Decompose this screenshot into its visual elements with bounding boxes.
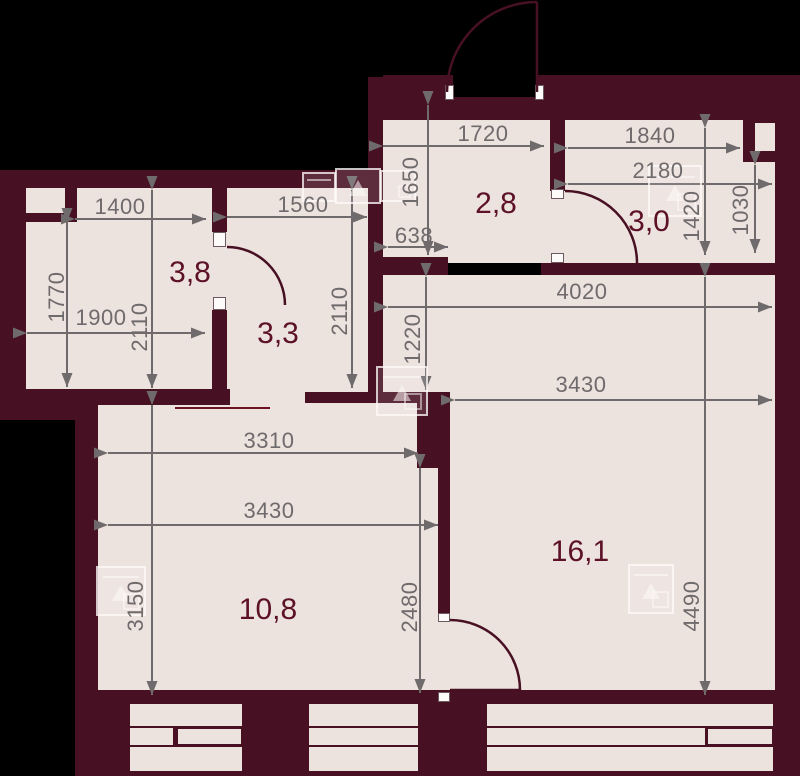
wall [0,389,230,405]
floor-plan: 1400 1560 1900 1720 638 1840 2180 4020 3… [0,0,800,776]
window-block [485,702,775,728]
door-frame-stub [445,85,454,100]
window-block [128,726,175,747]
room-area-label-30: 3,0 [628,205,670,239]
vent-shaft-niche [755,123,775,151]
dim-label-4490: 4490 [679,581,705,632]
door-frame-stub [213,232,226,247]
dim-label-3430-bedroom: 3430 [244,498,295,524]
window-block [128,745,244,773]
wall [438,468,450,615]
wall [368,77,383,393]
wall-niche [27,188,65,213]
room-38-33-fill [26,188,368,405]
dim-label-1770: 1770 [44,272,70,323]
dim-label-2180: 2180 [633,158,684,184]
wall [65,188,77,222]
dim-label-3310: 3310 [244,428,295,454]
dim-label-2480: 2480 [397,582,423,633]
window-block [307,702,420,728]
window-sash [175,726,244,747]
wall [212,188,227,232]
dim-label-4020: 4020 [557,279,608,305]
hall-28-bath-30-fill [383,120,778,263]
wall [26,213,65,222]
dim-label-1560: 1560 [278,192,329,218]
wall [75,420,98,690]
window-block [307,745,420,773]
room-area-label-33: 3,3 [257,317,299,351]
door-frame-stub [551,189,564,199]
window-block [485,745,775,773]
window-block [307,726,420,747]
dim-label-638: 638 [395,223,433,249]
dim-label-1900: 1900 [76,305,127,331]
appliance-watermark-icon [628,564,674,614]
door-frame-stub [535,85,544,100]
wall [383,257,448,275]
window-sash [705,726,775,747]
room-area-label-38: 3,8 [169,256,211,290]
dim-label-2110-left: 2110 [127,302,153,351]
dim-label-3430-living: 3430 [556,372,607,398]
dim-label-1220: 1220 [400,314,426,365]
door-frame-stub [551,253,564,263]
room-area-label-108: 10,8 [239,593,297,627]
dim-label-1420: 1420 [679,191,705,242]
dim-label-1720: 1720 [458,121,509,147]
door-frame-stub [438,692,450,702]
window-block [485,726,707,747]
dim-label-1400: 1400 [95,194,146,220]
dim-label-1840: 1840 [625,123,676,149]
room-area-label-28: 2,8 [475,187,517,221]
dim-label-3150: 3150 [123,581,149,632]
wall [0,405,98,420]
appliance-watermark-icon [335,168,381,204]
appliance-watermark-icon [376,366,428,416]
wall [0,188,26,405]
dim-label-1650: 1650 [398,157,424,208]
wall [541,263,775,275]
dim-label-2110-hall: 2110 [327,286,353,335]
wall [550,120,565,191]
room-area-label-161: 16,1 [551,535,609,569]
wall [383,75,775,120]
door-frame-stub [213,297,226,310]
dim-label-1030: 1030 [728,185,754,236]
entrance-door-opening [453,75,536,97]
wall [775,75,800,776]
window-block [128,702,244,728]
door-frame-stub [438,613,450,622]
furniture-line [175,407,270,409]
